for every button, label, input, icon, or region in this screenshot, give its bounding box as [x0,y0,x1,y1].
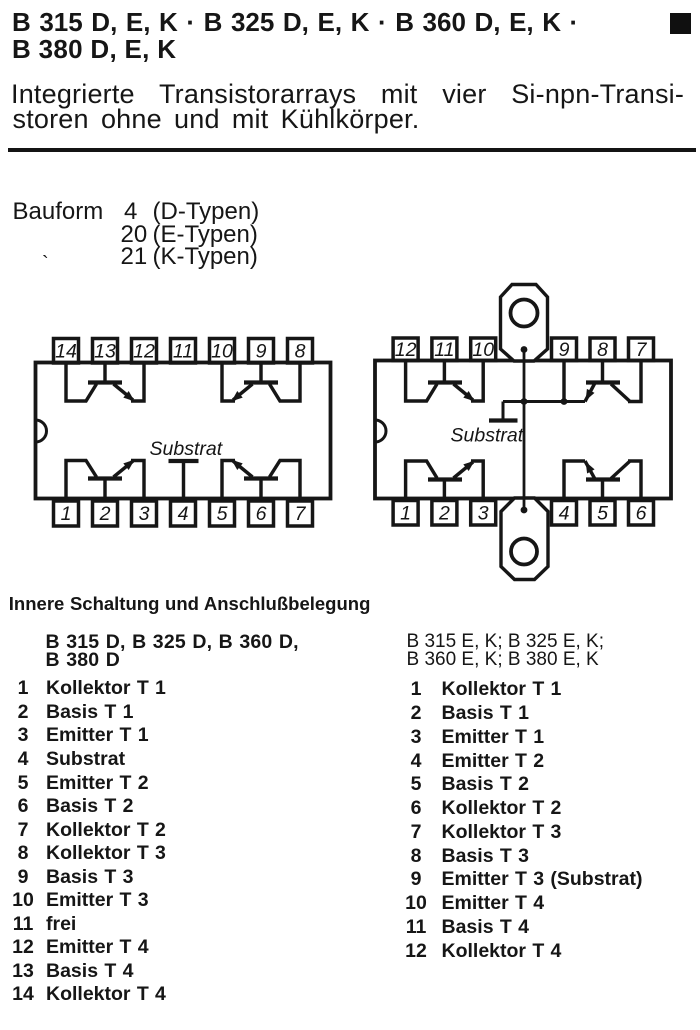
svg-text:5: 5 [597,503,608,525]
svg-text:8: 8 [597,339,608,361]
svg-text:9: 9 [559,339,570,361]
svg-text:3: 3 [478,503,489,525]
svg-text:Substrat: Substrat [451,425,525,447]
svg-text:4: 4 [178,503,189,525]
svg-text:4: 4 [559,503,570,525]
svg-text:1: 1 [400,503,411,525]
svg-text:14: 14 [55,340,77,362]
svg-text:3: 3 [139,503,150,525]
svg-text:10: 10 [472,339,494,361]
svg-text:9: 9 [256,340,267,362]
svg-text:2: 2 [99,503,111,525]
svg-text:Substrat: Substrat [150,438,224,460]
svg-text:7: 7 [636,339,648,361]
svg-text:2: 2 [438,503,450,525]
svg-text:5: 5 [217,503,228,525]
svg-text:6: 6 [636,503,647,525]
svg-text:11: 11 [434,339,454,361]
svg-text:13: 13 [94,340,116,362]
svg-text:11: 11 [173,340,193,362]
svg-text:8: 8 [295,340,306,362]
svg-text:12: 12 [395,339,417,361]
svg-text:12: 12 [133,340,155,362]
svg-text:6: 6 [256,503,267,525]
svg-text:7: 7 [295,503,307,525]
svg-text:10: 10 [211,340,233,362]
svg-text:1: 1 [61,503,72,525]
